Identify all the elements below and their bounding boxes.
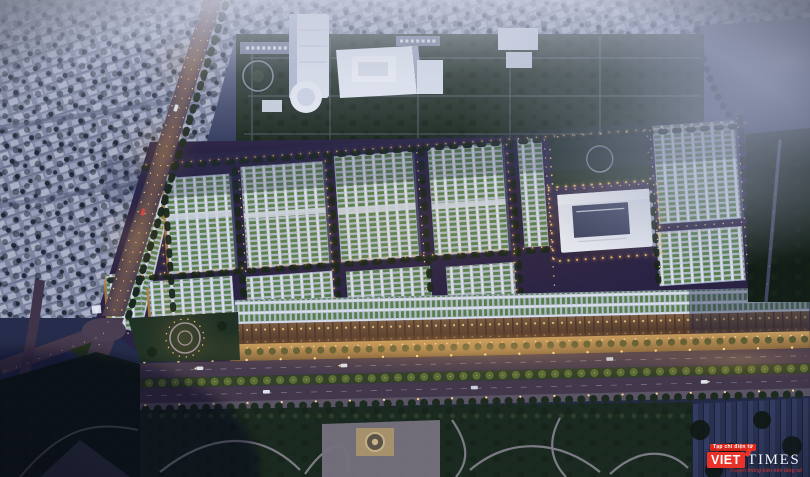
- logo-tagline-bottom: Truyền thông trên nền tảng số: [707, 469, 803, 474]
- aerial-night-render: Tạp chí điện tử VIET TIMES Truyền thông …: [0, 0, 810, 477]
- logo-viet-wordmark: VIET: [707, 452, 745, 468]
- logo-times-wordmark: TIMES: [747, 453, 800, 468]
- logo-wordmark-row: VIET TIMES: [707, 452, 803, 468]
- vignette: [0, 0, 810, 477]
- viettimes-watermark: Tạp chí điện tử VIET TIMES Truyền thông …: [707, 436, 803, 474]
- masterplan-scene: [0, 0, 810, 477]
